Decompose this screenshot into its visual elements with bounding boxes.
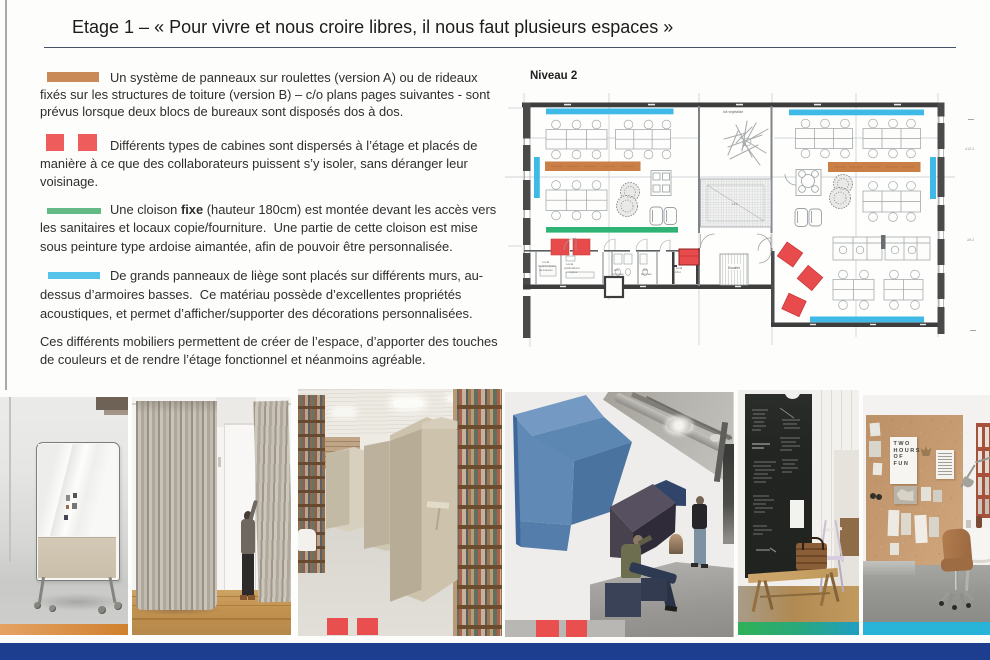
svg-text:⅄12.4: ⅄12.4 [964, 147, 974, 151]
svg-text:14.6: 14.6 [732, 202, 738, 206]
svg-text:Escalier: Escalier [728, 266, 741, 270]
svg-text:infor.: infor. [675, 270, 682, 274]
svg-text:femmes: femmes [641, 272, 652, 276]
svg-text:toit végétalisé: toit végétalisé [723, 110, 743, 114]
svg-text:⅄9.2: ⅄9.2 [966, 238, 974, 242]
svg-text:de bureau: de bureau [539, 268, 553, 272]
svg-text:+ copies: + copies [566, 270, 578, 274]
svg-text:hommes: hommes [612, 272, 624, 276]
